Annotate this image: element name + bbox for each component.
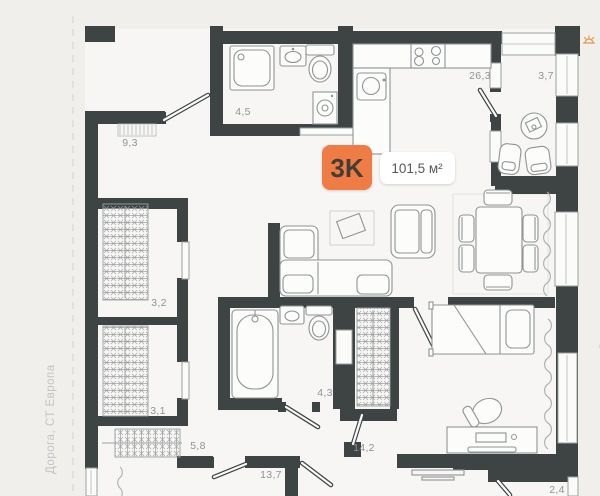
pocket-door-wardrobe-1 [182,242,189,279]
desk [447,427,537,453]
utility-shaft [336,330,352,364]
shower-tray [230,46,274,90]
dining-table [476,207,522,273]
room-label-kitchen-living: 26,3 [469,70,491,82]
room-label-wardrobe-2: 3,1 [150,405,166,417]
window-bedroom [558,353,577,443]
window-bottom-left [86,468,97,496]
pocket-door-bathroom-top [300,128,357,135]
wardrobe-2-hatch [103,326,148,416]
washing-machine [313,92,337,124]
sun-path-compass-icon [584,18,600,63]
bathroom-sink [280,306,304,324]
balcony-table [521,113,547,139]
rooms-count-label: 3K [330,153,363,183]
room-label-hallway: 9,3 [122,137,138,149]
bed [429,302,534,356]
sunrise-icon-left [584,36,595,43]
pocket-door-wardrobe-2 [182,362,189,399]
stove [411,44,445,68]
bathtub [232,310,278,398]
floor-plan-image: 9,3 4,5 26,3 3,7 3,2 3,1 5,8 13,7 4,3 14… [40,16,600,496]
room-label-balcony-bottom: 2,4 [549,484,565,496]
room-label-bathroom-small: 4,5 [235,106,251,118]
armchair [391,205,435,258]
room-label-balcony-top: 3,7 [538,70,554,82]
floor-plan-svg: 9,3 4,5 26,3 3,7 3,2 3,1 5,8 13,7 4,3 14… [40,16,600,496]
street-side-label: Дорога, СТ Европа [45,364,57,474]
hand-sink [280,46,306,66]
total-area-label: 101,5 м² [391,161,443,176]
window-dining [555,212,578,286]
window-balcony-divider-1 [490,63,501,88]
room-label-wardrobe-1: 3,2 [151,297,167,309]
wardrobe-1-hatch [103,204,148,300]
wardrobe-3-hatch [357,308,390,406]
room-label-bedroom-1: 13,7 [260,469,282,481]
room-label-hallway-2: 5,8 [190,440,206,452]
room-label-bathroom-main: 4,3 [317,387,333,399]
room-label-bedroom-2: 14,2 [353,442,375,454]
